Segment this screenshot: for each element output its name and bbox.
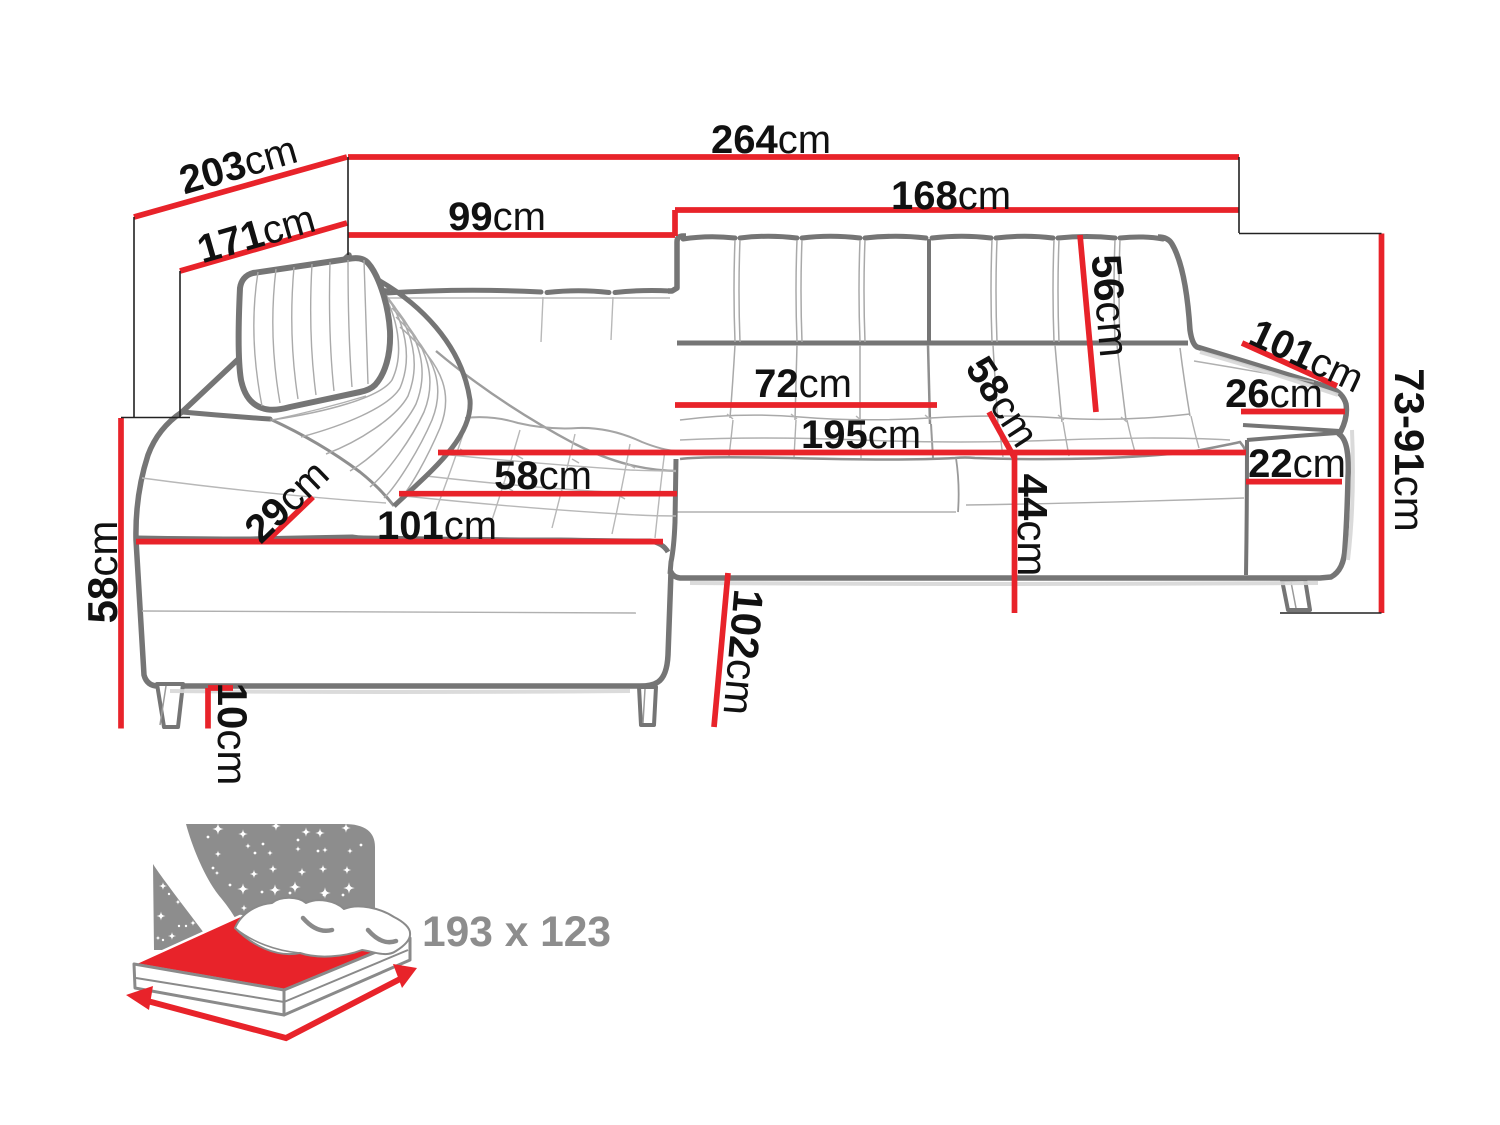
svg-text:72cm: 72cm: [754, 362, 852, 406]
svg-text:203cm: 203cm: [175, 128, 303, 203]
svg-text:99cm: 99cm: [448, 195, 546, 239]
svg-text:101cm: 101cm: [377, 504, 497, 548]
svg-text:168cm: 168cm: [891, 174, 1011, 218]
svg-text:73-91cm: 73-91cm: [1386, 368, 1433, 531]
svg-text:264cm: 264cm: [711, 118, 831, 162]
svg-text:193 x 123: 193 x 123: [422, 909, 611, 956]
svg-text:22cm: 22cm: [1248, 442, 1346, 486]
svg-text:58cm: 58cm: [79, 521, 126, 624]
svg-text:171cm: 171cm: [193, 197, 321, 272]
svg-text:10cm: 10cm: [209, 683, 256, 786]
svg-text:58cm: 58cm: [494, 454, 592, 498]
svg-text:44cm: 44cm: [1009, 474, 1056, 577]
svg-text:26cm: 26cm: [1225, 372, 1323, 416]
svg-text:56cm: 56cm: [1083, 253, 1139, 359]
svg-text:195cm: 195cm: [801, 413, 921, 457]
